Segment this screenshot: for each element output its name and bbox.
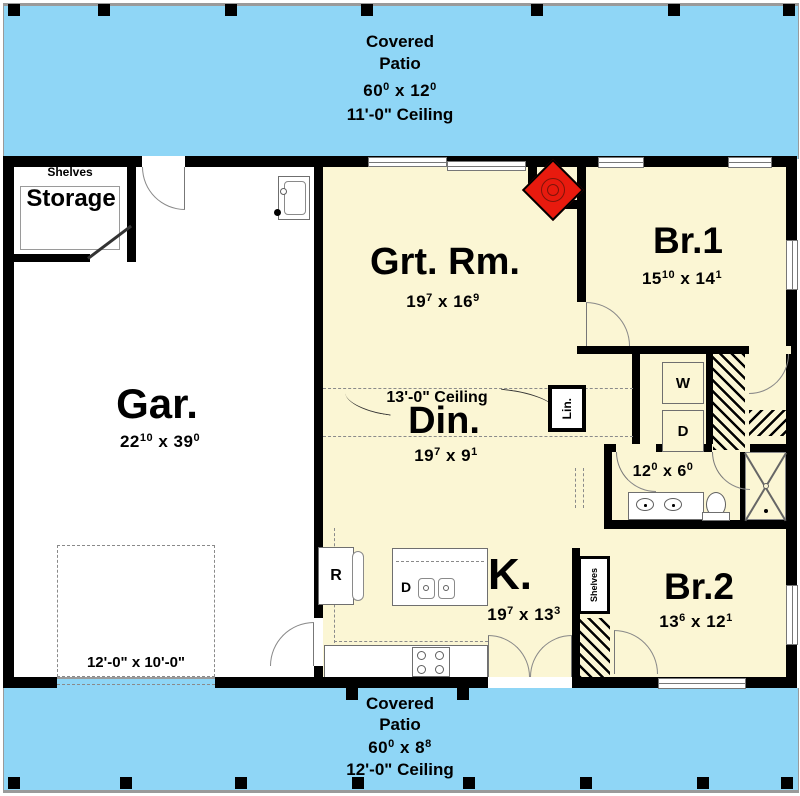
br1-label: Br.1 [653,222,723,261]
utility-sink-faucet [280,188,287,195]
wall-bath-west [604,444,612,529]
window-br1-top [598,157,644,168]
br1-dimensions: 1510 x 141 [642,270,722,288]
dining-dimensions: 197 x 91 [414,447,478,465]
patio-post [361,4,373,16]
patio-top-ceiling-note: 11'-0" Ceiling [347,106,454,124]
patio-post [531,4,543,16]
garage-door-size-label: 12'-0" x 10'-0" [87,655,185,671]
garage-door-line [57,684,215,685]
patio-post [697,777,709,789]
floor-drain [274,209,281,216]
dryer-label: D [678,423,689,440]
wall-laundry-west [632,354,640,452]
cased-opening-line [583,468,584,508]
patio-bottom-title-line2: Patio [379,716,421,734]
refrigerator-door [352,551,364,601]
patio-post [457,688,469,700]
patio-post [8,4,20,16]
patio-top-title-line1: Covered [366,33,434,51]
wall-storage-bottom [14,254,90,262]
br2-shelves-hatch [578,618,610,677]
garage-dimensions: 2210 x 390 [120,433,200,451]
island-overhang-line [396,561,484,562]
toilet-tank [702,512,730,521]
patio-top-title-line2: Patio [379,55,421,73]
burner [417,665,426,674]
patio-post [8,777,20,789]
window-br1-top-2 [728,157,772,168]
patio-bottom-dimensions: 600 x 88 [368,739,432,757]
door-opening-bath [616,444,656,452]
patio-post [463,777,475,789]
shower-drain [763,483,769,489]
burner [435,665,444,674]
great-room-dimensions: 197 x 169 [406,293,480,311]
door-opening-hall [749,346,791,354]
patio-post [98,4,110,16]
patio-post [346,688,358,700]
window-br1-right [786,240,798,290]
sliding-door-panel-b [447,161,526,171]
br2-dimensions: 136 x 121 [659,613,733,631]
dishwasher-label: D [401,580,411,595]
sink-drain [644,504,647,507]
storage-label: Storage [26,186,115,211]
great-room-label: Grt. Rm. [370,243,520,283]
br2-closet: Shelves [578,556,610,614]
patio-post [783,4,795,16]
window-br2-right [786,585,798,645]
linen-closet: Lin. [548,385,586,432]
patio-bottom-ceiling-note: 12'-0" Ceiling [346,761,454,779]
floor-plan: Covered Patio 600 x 120 11'-0" Ceiling C… [0,0,800,796]
dryer-box: D [662,410,704,452]
patio-post [781,777,793,789]
wall-storage-right [127,167,136,262]
door-opening-patio-doors [488,677,572,688]
kitchen-dimensions: 197 x 133 [487,606,561,624]
refrigerator-label: R [330,567,342,585]
sliding-door-panel-a [368,157,447,167]
garage-label: Gar. [116,382,198,426]
fireplace-ring-outer [536,173,570,207]
patio-post [235,777,247,789]
burner [435,651,444,660]
patio-post [225,4,237,16]
shelves-hatch-vertical [713,354,745,450]
shelves-hatch-horizontal [749,410,789,436]
fireplace-ring-inner [545,182,562,199]
sink-drain [423,585,429,591]
washer-label: W [676,375,690,392]
door-opening-service [142,156,185,167]
dining-label: Din. [408,402,480,442]
outer-wall-left [3,156,14,688]
kitchen-label: K. [488,552,532,598]
wall-bath-south [604,520,797,529]
patio-post [120,777,132,789]
sink-drain [443,585,449,591]
counter-edge-line [334,641,488,642]
br2-closet-shelves-label: Shelves [589,568,599,602]
patio-top-dimensions: 600 x 120 [363,82,437,100]
door-opening-garage-kitchen [314,618,323,666]
shower-head [764,509,768,513]
wall-laundry-mid [706,354,713,452]
patio-bottom-title-line1: Covered [366,695,434,713]
burner [417,651,426,660]
storage-shelves-label: Shelves [47,166,92,179]
linen-label: Lin. [560,398,574,419]
patio-post [580,777,592,789]
utility-sink-basin [284,181,306,215]
refrigerator: R [318,547,354,605]
cased-opening-line [575,468,576,508]
br2-label: Br.2 [664,568,734,607]
window-br2-bottom [658,678,746,689]
shower-stall [745,452,786,520]
washer-box: W [662,362,704,404]
patio-post [668,4,680,16]
kitchen-counter [324,645,488,677]
sink-drain [672,504,675,507]
